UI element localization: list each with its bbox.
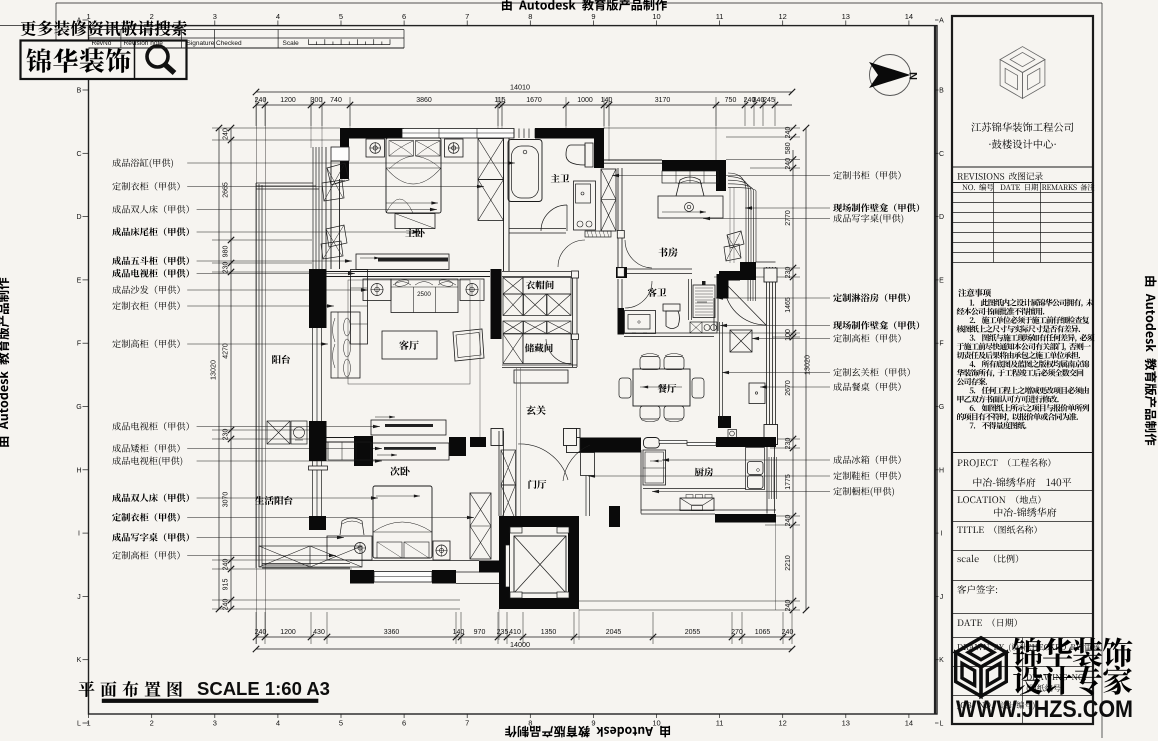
svg-text:3860: 3860 (416, 97, 432, 104)
svg-text:RevNo: RevNo (92, 40, 112, 47)
svg-text:3170: 3170 (655, 97, 671, 104)
svg-text:1000: 1000 (577, 97, 593, 104)
svg-text:3: 3 (213, 12, 217, 21)
svg-text:580: 580 (785, 142, 792, 154)
svg-text:9: 9 (591, 719, 595, 728)
svg-text:E: E (77, 277, 82, 284)
svg-text:980: 980 (223, 246, 230, 258)
svg-text:J: J (77, 594, 81, 601)
svg-text:1065: 1065 (755, 629, 771, 636)
svg-text:A: A (939, 18, 944, 25)
svg-text:240: 240 (785, 127, 792, 139)
svg-text:14000: 14000 (510, 640, 530, 649)
svg-text:1200: 1200 (280, 629, 296, 636)
svg-text:245: 245 (763, 97, 775, 104)
svg-text:2670: 2670 (785, 380, 792, 396)
svg-text:970: 970 (474, 629, 486, 636)
svg-text:2770: 2770 (785, 210, 792, 226)
svg-text:12: 12 (779, 12, 787, 21)
svg-text:14010: 14010 (510, 83, 530, 92)
svg-text:E: E (939, 277, 944, 284)
svg-text:2045: 2045 (606, 629, 622, 636)
svg-text:240: 240 (785, 600, 792, 612)
svg-text:750: 750 (725, 97, 737, 104)
svg-text:SCALE 1:60 A3: SCALE 1:60 A3 (197, 678, 330, 699)
svg-text:2665: 2665 (223, 182, 230, 198)
svg-text:K: K (77, 657, 82, 664)
svg-text:1200: 1200 (280, 97, 296, 104)
svg-text:G: G (939, 404, 944, 411)
svg-text:I: I (941, 531, 943, 538)
svg-text:Revision note: Revision note (124, 40, 164, 47)
svg-text:410: 410 (509, 629, 521, 636)
svg-text:13: 13 (842, 12, 850, 21)
svg-text:B: B (77, 88, 82, 95)
svg-text:240: 240 (785, 515, 792, 527)
svg-text:8: 8 (528, 12, 532, 21)
svg-text:C: C (76, 151, 81, 158)
svg-text:5: 5 (339, 719, 343, 728)
svg-text:L: L (77, 721, 81, 728)
svg-text:2500: 2500 (417, 291, 431, 298)
svg-text:J: J (940, 594, 944, 601)
svg-text:3360: 3360 (384, 629, 400, 636)
svg-text:Checked: Checked (216, 40, 242, 47)
svg-text:2: 2 (150, 12, 154, 21)
svg-text:H: H (76, 467, 81, 474)
svg-text:1775: 1775 (785, 474, 792, 490)
svg-text:3070: 3070 (223, 492, 230, 508)
svg-text:915: 915 (223, 579, 230, 591)
svg-text:2210: 2210 (785, 555, 792, 571)
svg-text:6: 6 (402, 12, 406, 21)
svg-text:B: B (939, 88, 944, 95)
svg-text:11: 11 (716, 12, 724, 21)
svg-text:F: F (77, 341, 81, 348)
svg-text:1350: 1350 (541, 629, 557, 636)
svg-text:240: 240 (782, 629, 794, 636)
svg-text:230: 230 (785, 267, 792, 279)
svg-text:14: 14 (905, 12, 913, 21)
svg-text:2: 2 (150, 719, 154, 728)
svg-text:11: 11 (716, 719, 724, 728)
svg-text:10: 10 (652, 12, 660, 21)
svg-text:230: 230 (223, 429, 230, 441)
svg-text:L: L (940, 721, 944, 728)
svg-text:N: N (908, 72, 920, 80)
svg-text:6: 6 (402, 719, 406, 728)
svg-text:4270: 4270 (223, 343, 230, 359)
svg-text:C: C (939, 151, 944, 158)
svg-text:4: 4 (276, 12, 280, 21)
svg-text:I: I (78, 531, 80, 538)
svg-text:13: 13 (842, 719, 850, 728)
svg-text:230: 230 (785, 438, 792, 450)
svg-text:12: 12 (779, 719, 787, 728)
svg-text:230: 230 (223, 262, 230, 274)
svg-text:F: F (939, 341, 943, 348)
svg-text:10: 10 (652, 719, 660, 728)
svg-text:H: H (939, 467, 944, 474)
svg-text:Scale: Scale (283, 40, 300, 47)
svg-text:13020: 13020 (209, 360, 218, 380)
svg-text:D: D (939, 214, 944, 221)
svg-text:WWW.JHZS.COM: WWW.JHZS.COM (956, 696, 1133, 723)
svg-text:240: 240 (223, 559, 230, 571)
svg-text:240: 240 (255, 97, 267, 104)
svg-text:1465: 1465 (785, 297, 792, 313)
svg-text:3: 3 (213, 719, 217, 728)
svg-text:240: 240 (255, 629, 267, 636)
svg-text:240: 240 (223, 599, 230, 611)
svg-text:D: D (76, 214, 81, 221)
svg-text:240: 240 (223, 128, 230, 140)
svg-text:2055: 2055 (685, 629, 701, 636)
svg-text:270: 270 (731, 629, 743, 636)
svg-text:235: 235 (497, 629, 509, 636)
svg-text:7: 7 (465, 719, 469, 728)
svg-text:G: G (76, 404, 81, 411)
svg-text:430: 430 (313, 629, 325, 636)
svg-text:7: 7 (465, 12, 469, 21)
svg-text:13020: 13020 (803, 355, 812, 375)
svg-text:4: 4 (276, 719, 280, 728)
svg-text:K: K (939, 657, 944, 664)
svg-text:300: 300 (311, 97, 323, 104)
svg-text:740: 740 (330, 97, 342, 104)
svg-text:5: 5 (339, 12, 343, 21)
svg-text:14: 14 (905, 719, 913, 728)
svg-text:1670: 1670 (526, 97, 542, 104)
svg-text:9: 9 (591, 12, 595, 21)
svg-text:Signature: Signature (187, 40, 215, 47)
